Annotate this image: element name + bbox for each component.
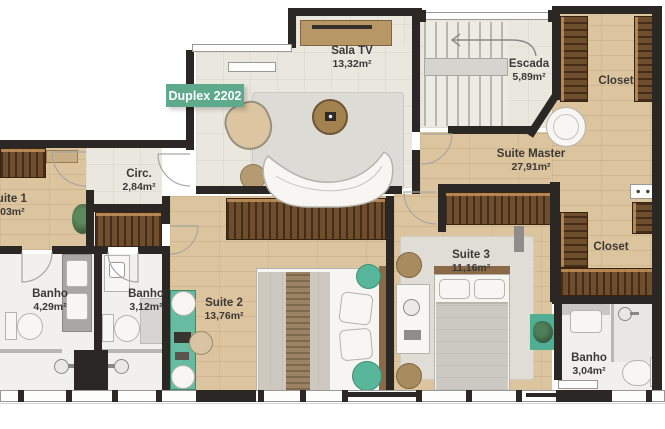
nightstand — [396, 284, 430, 354]
toilet-bowl — [622, 360, 652, 386]
wall-segment — [412, 150, 420, 194]
room-name: Sala TV — [331, 45, 373, 57]
room-area: 11,16m² — [452, 262, 491, 275]
wall-segment — [202, 390, 256, 402]
stairs-landing — [424, 58, 508, 76]
window-tick — [66, 390, 72, 402]
closet-right-wardrobe — [560, 212, 588, 268]
closet-right-wardrobe — [632, 202, 654, 234]
room-label-escada: Escada 5,89m² — [509, 57, 549, 85]
wall-segment — [86, 204, 170, 212]
shower-head-icon — [114, 359, 129, 374]
shower-arm — [630, 312, 639, 315]
tv-panel — [514, 226, 524, 252]
shower-partition — [102, 349, 162, 353]
wall-segment — [86, 190, 94, 254]
door-leaf — [228, 62, 276, 72]
lamp — [403, 299, 420, 316]
room-label-suite-master: Suite Master 27,91m² — [497, 147, 565, 175]
window-tick — [196, 390, 202, 402]
room-label-sala-tv: Sala TV 13,32m² — [331, 44, 373, 72]
toilet-bowl — [17, 313, 43, 340]
sink-basin — [66, 293, 88, 320]
window-tick — [300, 390, 306, 402]
wall-segment — [0, 140, 192, 148]
floor-plan: Sala TV 13,32m² Escada 5,89m² Closet Sui… — [0, 0, 665, 429]
wall-segment — [448, 126, 534, 134]
sofa-pillow — [314, 182, 341, 197]
wall-segment — [0, 246, 22, 254]
wall-segment — [138, 246, 170, 254]
wall-segment — [550, 182, 560, 302]
toilet-tank — [5, 312, 17, 340]
window-tick — [646, 390, 652, 402]
desk-item — [175, 352, 189, 360]
wall-segment — [412, 14, 420, 132]
bed-throw — [286, 272, 310, 390]
wall-segment — [562, 390, 612, 402]
bed-blanket — [436, 302, 508, 390]
suite-1-wardrobe — [0, 148, 46, 178]
room-name: Banho — [32, 288, 68, 300]
door-arc — [158, 154, 190, 186]
suite-1-shelf — [46, 150, 78, 163]
room-name: Closet — [598, 75, 633, 87]
room-area: 5,89m² — [509, 71, 549, 84]
wall-segment — [348, 392, 418, 397]
chair — [189, 331, 213, 355]
toilet-tank — [102, 314, 114, 342]
room-name: Escada — [509, 58, 549, 70]
room-name: Circ. — [126, 168, 152, 180]
room-label-banho-2: Banho 3,12m² — [128, 287, 164, 315]
wall-segment — [440, 184, 560, 192]
room-area: 8,03m² — [0, 206, 27, 219]
door-leaf — [558, 380, 598, 389]
wall-segment — [552, 296, 662, 304]
sink-basin — [109, 262, 125, 278]
camera-icon — [325, 112, 336, 121]
window-tick — [548, 10, 554, 22]
room-area: 27,91m² — [497, 161, 565, 174]
closet-top-wardrobe — [560, 16, 588, 102]
desk-chair — [171, 365, 195, 389]
hall-wardrobe — [95, 212, 162, 247]
facade-line — [0, 403, 665, 404]
room-label-banho-1: Banho 4,29m² — [32, 287, 68, 315]
tv-sideboard — [300, 20, 392, 46]
room-label-banho-3: Banho 3,04m² — [571, 351, 607, 379]
bed-pillow — [339, 328, 374, 362]
window-tick — [466, 390, 472, 402]
wall-segment — [554, 304, 562, 380]
bed-pillow — [474, 279, 505, 299]
wall-segment — [552, 6, 654, 14]
wall-segment — [288, 8, 296, 48]
room-area: 13,76m² — [204, 310, 243, 323]
sink-basin — [66, 260, 88, 287]
room-name: Banho — [128, 288, 164, 300]
pouf — [352, 361, 382, 391]
room-name: Suite 3 — [452, 249, 490, 261]
plant-icon — [533, 321, 553, 343]
toilet-bowl — [114, 315, 140, 342]
window — [192, 44, 292, 52]
room-label-closet-top: Closet — [598, 74, 633, 88]
window-tick — [516, 390, 522, 402]
suite-3-wardrobe — [444, 192, 552, 225]
window — [420, 12, 554, 20]
book — [404, 330, 421, 340]
room-area: 3,12m² — [128, 301, 164, 314]
desk-chair — [171, 291, 196, 316]
window-tick — [342, 390, 348, 402]
room-label-suite-2: Suite 2 13,76m² — [204, 296, 243, 324]
wall-segment — [386, 196, 394, 392]
window-tick — [606, 390, 612, 402]
unit-badge: Duplex 2202 — [166, 84, 244, 107]
room-label-suite-1: Suite 1 8,03m² — [0, 192, 27, 220]
sink-basin — [570, 310, 602, 333]
wall-segment — [52, 246, 108, 254]
window-tick — [556, 390, 562, 402]
bed-pillow — [338, 291, 374, 326]
room-name: Banho — [571, 352, 607, 364]
window-tick — [416, 390, 422, 402]
closet-right-wardrobe — [560, 268, 654, 296]
window-tick — [112, 390, 118, 402]
room-area: 3,04m² — [571, 365, 607, 378]
room-label-suite-3: Suite 3 11,16m² — [452, 248, 491, 276]
room-label-circ: Circ. 2,84m² — [122, 167, 155, 195]
shower-partition — [0, 349, 62, 353]
suite-2-wardrobe — [226, 198, 386, 240]
room-area: 13,32m² — [331, 58, 373, 71]
wall-segment — [652, 6, 662, 396]
window-tick — [156, 390, 162, 402]
room-name: Suite Master — [497, 148, 565, 160]
room-name: Suite 2 — [205, 297, 243, 309]
bed-pillow — [439, 279, 470, 299]
wall-segment — [288, 8, 422, 16]
window-tick — [258, 390, 264, 402]
master-armchair-cushion — [553, 114, 579, 140]
room-label-closet-right: Closet — [593, 240, 628, 254]
shower-head-icon — [54, 359, 69, 374]
pouf — [396, 252, 422, 278]
closet-top-wardrobe — [634, 16, 654, 102]
tv-screen — [312, 25, 372, 29]
pouf — [356, 264, 381, 289]
window-tick — [18, 390, 24, 402]
pouf — [396, 363, 422, 389]
window-tick — [420, 10, 426, 22]
wall-segment — [552, 14, 560, 100]
wall-segment — [162, 254, 170, 392]
room-name: Closet — [593, 241, 628, 253]
room-area: 4,29m² — [32, 301, 68, 314]
room-area: 2,84m² — [122, 181, 155, 194]
room-name: Suite 1 — [0, 193, 27, 205]
